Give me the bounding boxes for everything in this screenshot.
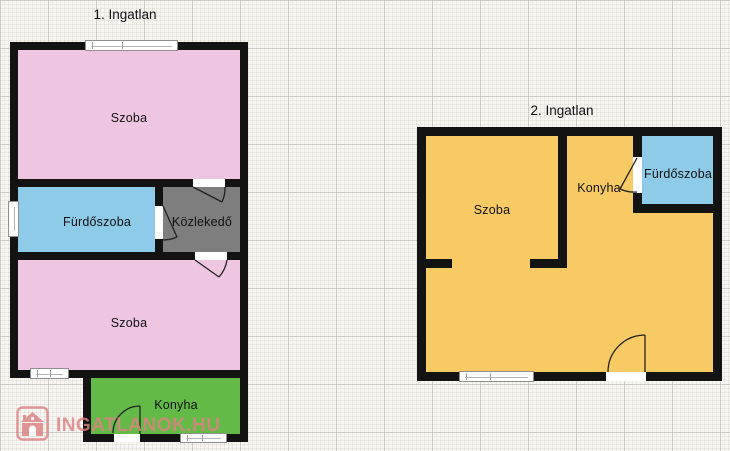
plan2-label-furdoszoba: Fürdőszoba bbox=[644, 167, 712, 181]
plan2-wall-szoba-divider bbox=[558, 136, 567, 268]
plan2-window-bottom-icon bbox=[459, 371, 534, 382]
plan2-door-entry-opening bbox=[606, 372, 646, 381]
plan1-label-szoba-bottom: Szoba bbox=[111, 316, 147, 330]
plan1-door-hall-bottom-opening bbox=[195, 252, 227, 260]
watermark: INGATLANOK.HU bbox=[16, 406, 220, 441]
plan-2-title: 2. Ingatlan bbox=[417, 103, 707, 118]
plan2-wall-right bbox=[713, 127, 722, 381]
plan1-door-hall-top-opening bbox=[193, 179, 225, 187]
plan1-label-furdoszoba: Fürdőszoba bbox=[63, 215, 131, 229]
plan1-wall-right bbox=[240, 42, 248, 442]
plan2-wall-top bbox=[417, 127, 722, 136]
plan1-door-bath-opening bbox=[155, 206, 163, 239]
house-logo-icon bbox=[16, 406, 49, 441]
plan1-label-szoba-top: Szoba bbox=[111, 111, 147, 125]
plan2-wall-stub-center bbox=[530, 259, 567, 268]
plan1-window-left-icon bbox=[8, 201, 19, 237]
plan2-label-szoba: Szoba bbox=[474, 203, 510, 217]
plan2-label-konyha: Konyha bbox=[577, 181, 621, 195]
floorplan-canvas: 1. Ingatlan Szoba Fürdőszoba Közlekedő S… bbox=[0, 0, 730, 451]
plan2-door-bath-opening bbox=[633, 157, 642, 193]
watermark-text: INGATLANOK.HU bbox=[56, 415, 220, 437]
plan2-wall-stub-left bbox=[426, 259, 452, 268]
plan1-window-top-icon bbox=[85, 40, 178, 51]
plan-1-title: 1. Ingatlan bbox=[10, 7, 240, 22]
plan2-wall-bath-bottom bbox=[633, 204, 713, 213]
plan1-window-bottomleft-icon bbox=[30, 368, 69, 379]
plan1-room-szoba-bottom bbox=[18, 260, 240, 370]
plan2-wall-left bbox=[417, 127, 426, 381]
plan1-label-kozlekedo: Közlekedő bbox=[172, 215, 232, 229]
